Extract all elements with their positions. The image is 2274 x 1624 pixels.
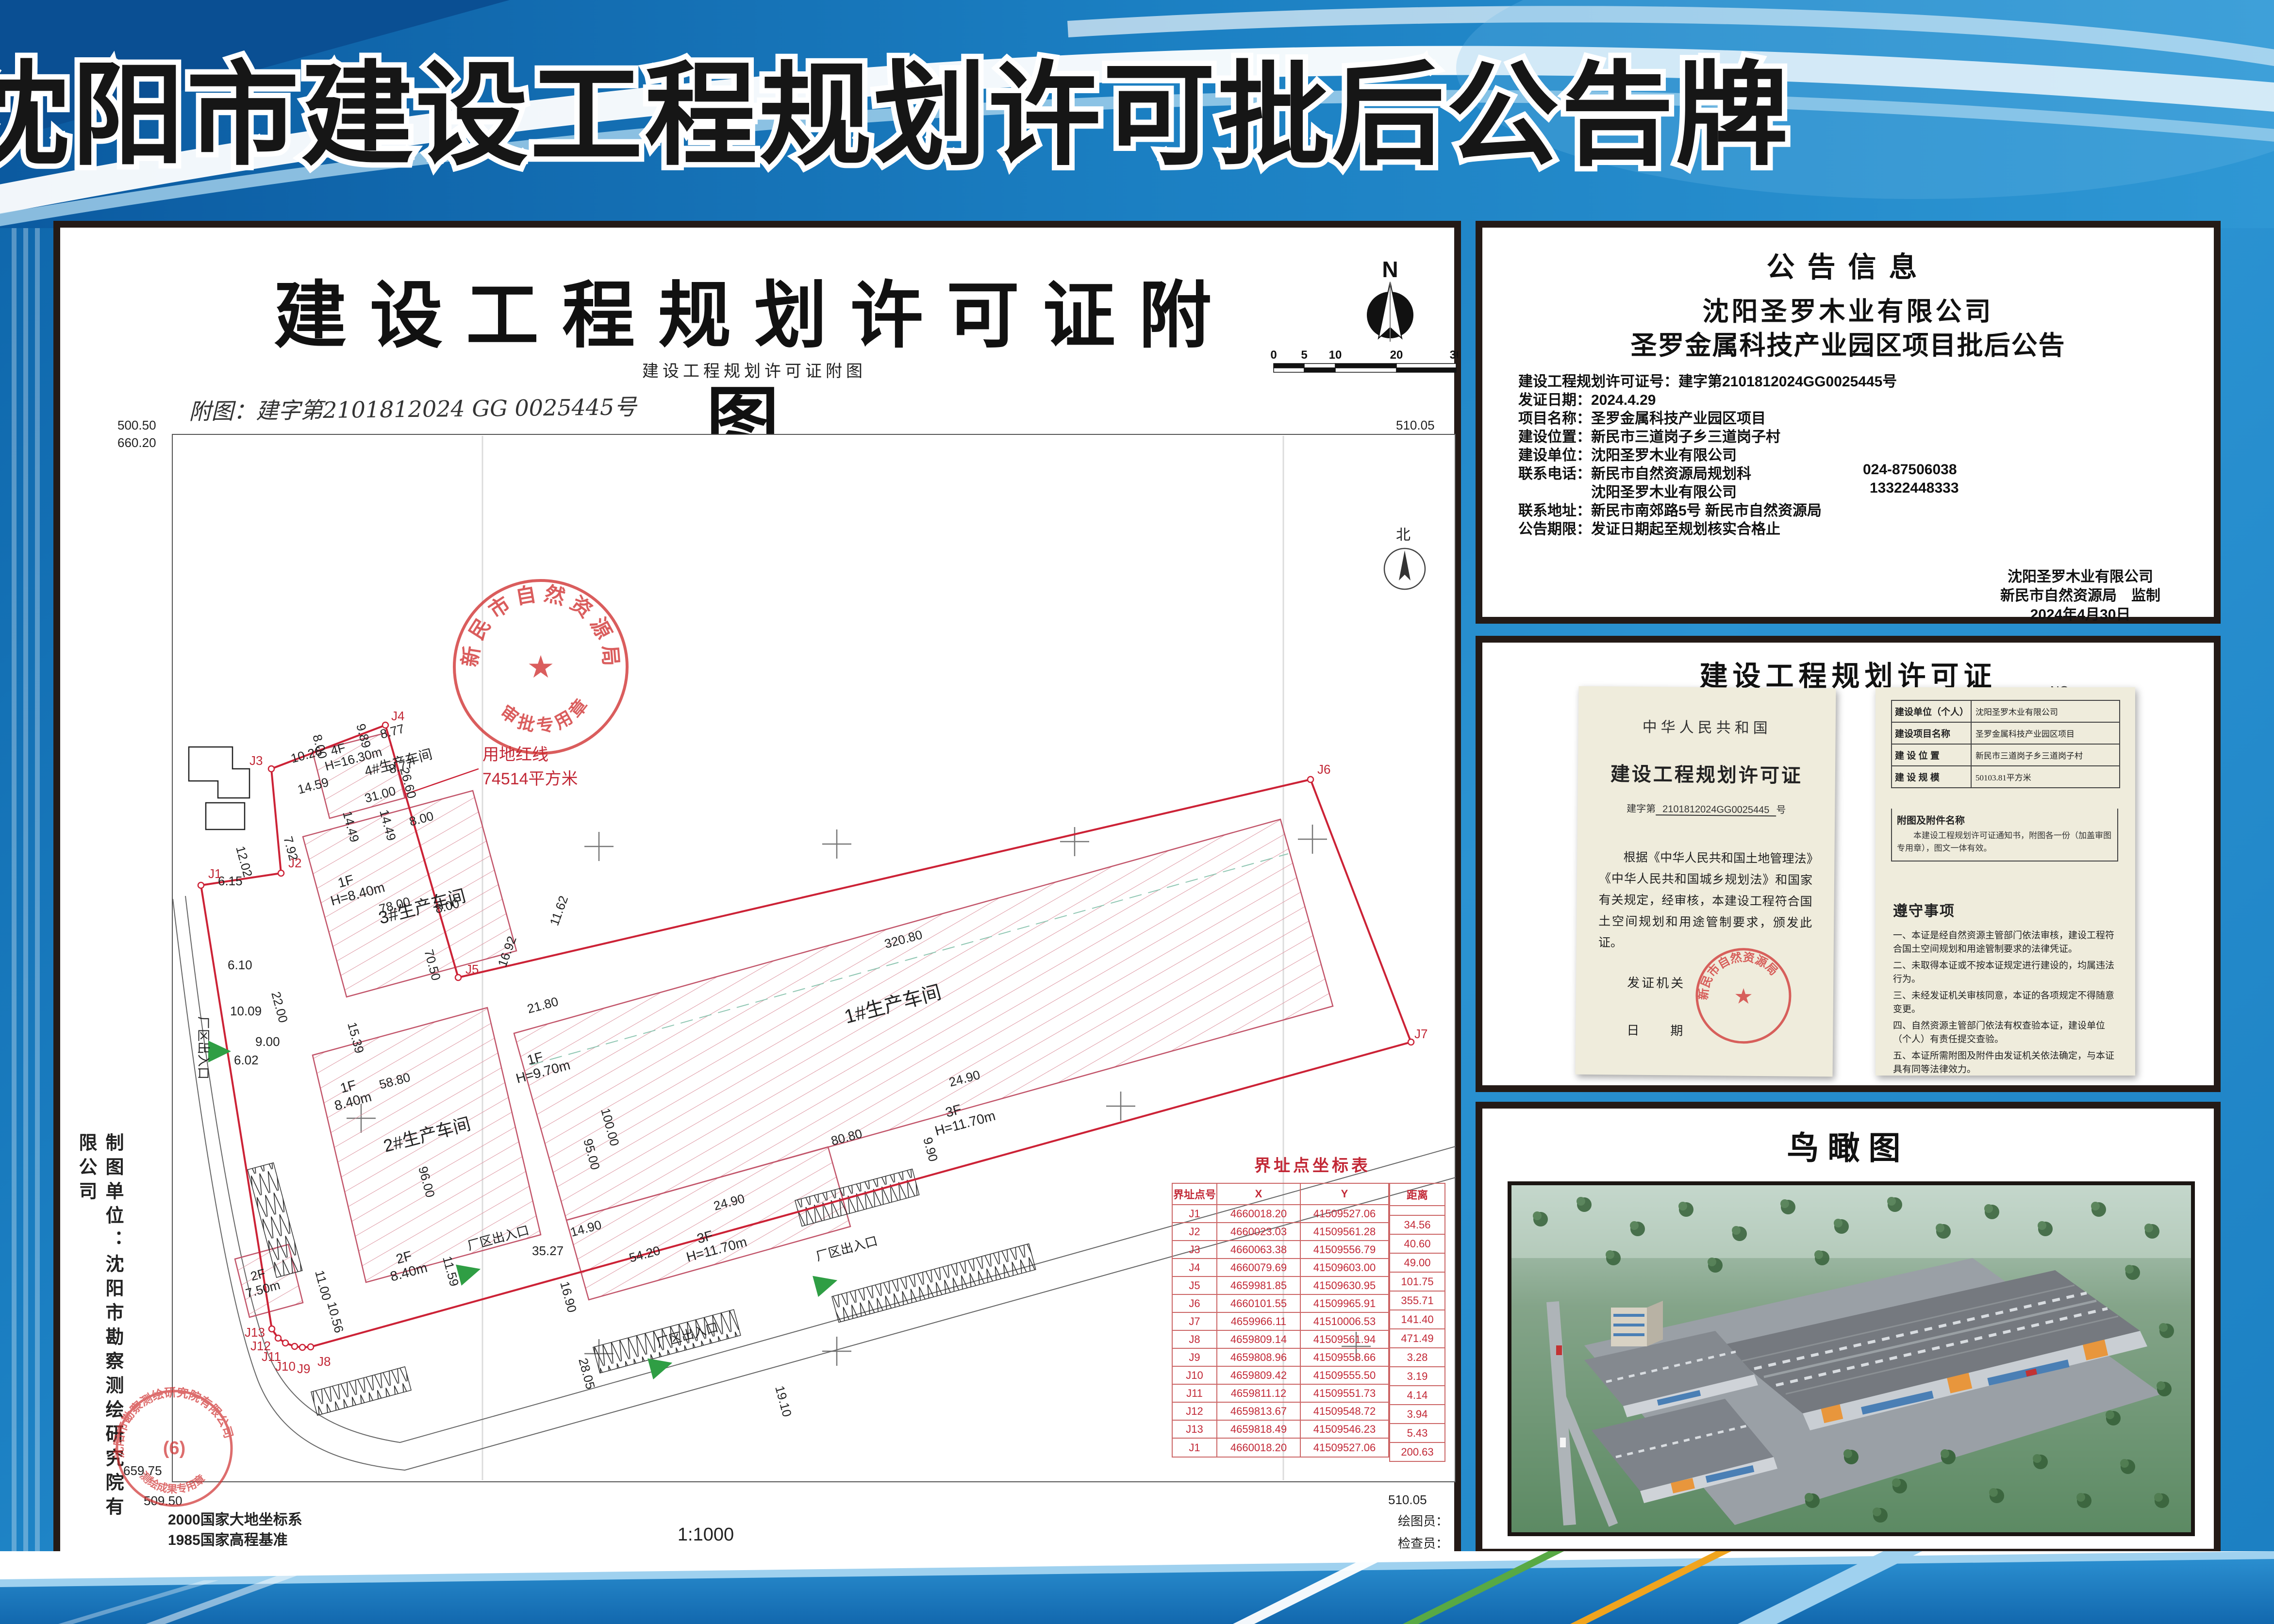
surveyor-seal-center: (6) [163,1438,185,1458]
permit-attach-text: 本建设工程规划许可证通知书，附图各一份（加盖审图专用章），图文一体有效。 [1897,829,2112,855]
office-block [1611,1301,1663,1346]
notice-info-line: 发证日期：2024.4.29 [1518,388,2194,406]
distance-cell: 355.71 [1390,1292,1444,1310]
notice-info-line: 建设工程规划许可证号：建字第2101812024GG0025445号 [1518,369,2194,388]
boundary-table-distances: 距离 34.5640.6049.00101.75355.71141.40471.… [1389,1183,1445,1462]
table-row: J3 4660063.38 41509556.79 [1173,1241,1389,1259]
permit-attach-block: 附图及附件名称 本建设工程规划许可证通知书，附图各一份（加盖审图专用章），图文一… [1891,809,2118,862]
permit-doc-title: 建设工程规划许可证 [1578,758,1835,789]
permit-detail-page: 建设单位（个人） 沈阳圣罗木业有限公司 建设项目名称 圣罗金属科技产业园区项目 … [1876,687,2135,1076]
svg-text:0: 0 [1270,348,1277,362]
distance-cell: 3.94 [1390,1405,1444,1424]
red-line-label-2: 74514平方米 [482,770,578,788]
staff-block: 绘图员：检查员： [1398,1510,1448,1555]
coord-tr-a: 510.05 [1396,418,1435,433]
permit-number-line: 建字第2101812024GG0025445号 [1577,800,1835,817]
permit-notes: 一、本证是经自然资源主管部门依法审核，建设工程符合国土空间规划和用途管制要求的法… [1893,929,2120,1079]
svg-text:5: 5 [1301,348,1307,362]
map-label: 6.10 [228,958,252,972]
notice-footer: 沈阳圣罗木业有限公司新民市自然资源局 监制2024年4月30日 [2000,567,2160,624]
coord-br-b: 510.05 [1388,1492,1427,1508]
map-label: 35.27 [532,1243,564,1258]
birdseye-title: 鸟瞰图 [1482,1122,2214,1169]
map-label: 6.15 [218,874,243,888]
distance-cell: 34.56 [1390,1216,1444,1235]
distance-cell: 49.00 [1390,1254,1444,1273]
distance-cell: 3.19 [1390,1367,1444,1386]
notice-info-line: 联系地址：新民市南郊路5号 新民市自然资源局 [1518,498,2194,517]
permit-table-row: 建 设 规 模 50103.81平方米 [1892,766,2119,788]
table-row: J9 4659808.96 41509558.66 [1173,1349,1389,1367]
permit-number: 2101812024GG0025445 [1656,804,1776,816]
svg-text:30: 30 [1450,348,1458,362]
table-row: J4 4660079.69 41509603.00 [1173,1259,1389,1277]
drawing-panel: 建设工程规划许可证附图 建设工程规划许可证附图 N 0 5 10 20 30 [53,221,1461,1558]
banner-background: 沈阳市建设工程规划许可批后公告牌 [0,0,2274,228]
approval-seal-star: ★ [527,649,554,684]
permit-attach-label: 附图及附件名称 [1897,812,2112,827]
distance-cell: 101.75 [1390,1273,1444,1292]
map-label: 厂区出入口 [196,1016,211,1079]
distance-cell: 4.14 [1390,1386,1444,1405]
map-label: 北 [1396,527,1411,543]
drawing-subtitle: 建设工程规划许可证附图 [245,358,1264,381]
issuer-seal-star: ★ [1734,985,1753,1009]
staff-line: 绘图员： [1398,1510,1448,1532]
issuer-seal: 新民市自然资源局 ★ [1687,940,1800,1052]
notice-info-panel: 公告信息 沈阳圣罗木业有限公司 圣罗金属科技产业园区项目批后公告 建设工程规划许… [1476,221,2221,624]
birdseye-rendering [1508,1181,2195,1536]
map-label: J4 [391,709,404,723]
permit-note-item: 五、本证所需附图及附件由发证机关依法确定，与本证具有同等法律效力。 [1893,1049,2120,1077]
notice-company: 沈阳圣罗木业有限公司 [1482,290,2214,328]
board-title: 沈阳市建设工程规划许可批后公告牌 [0,53,1790,179]
permit-note-item: 四、自然资源主管部门依法有权查验本证，建设单位（个人）有责任提交查验。 [1893,1019,2120,1046]
svg-text:20: 20 [1390,348,1403,362]
map-datum-line: 1985国家高程基准 [168,1530,341,1551]
notice-project: 圣罗金属科技产业园区项目批后公告 [1482,324,2214,362]
permit-table-row: 建 设 位 置 新民市三道岗子乡三道岗子村 [1892,745,2119,766]
table-row: J7 4659966.11 41510006.53 [1173,1313,1389,1331]
scale-bar: 0 5 10 20 30 [1270,348,1458,372]
handwritten-permit-number: 附图：建字第2101812024 GG 0025445号 [189,389,637,426]
left-edge-stripes [12,228,42,1553]
table-row: J13 4659818.49 41509546.23 [1173,1421,1389,1439]
table-row: J11 4659811.12 41509551.73 [1173,1385,1389,1403]
map-label: J13 [245,1325,265,1340]
notice-phone-row: 联系电话： 新民市自然资源局规划科 024-87506038 [1518,462,2194,480]
permit-body-text: 根据《中华人民共和国土地管理法》《中华人民共和国城乡规划法》和国家有关规定，经审… [1598,846,1813,955]
table-row: J1 4660018.20 41509527.06 [1173,1439,1389,1457]
permit-note-item: 一、本证是经自然资源主管部门依法审核，建设工程符合国土空间规划和用途管制要求的法… [1893,929,2120,956]
table-row: J6 4660101.55 41509965.91 [1173,1295,1389,1313]
table-row: J2 4660023.03 41509561.28 [1173,1223,1389,1241]
notice-board: 沈阳市建设工程规划许可批后公告牌 建设工程规划许可证附图 建设工程规划许可证附图… [0,0,2274,1624]
map-scale-text: 1:1000 [633,1525,779,1545]
boundary-coordinate-table: 界址点坐标表 界址点号 X Y J1 4660018.20 [1172,1152,1453,1462]
surveyor-seal: 沈阳市勘察测绘研究院有限公司 (6) 测绘成果专用章 [106,1380,242,1516]
table-row: J5 4659981.85 41509630.95 [1173,1277,1389,1295]
surveyor-seal-bottom-text: 测绘成果专用章 [138,1469,208,1495]
map-label: J12 [250,1339,271,1353]
distance-cell: 141.40 [1390,1310,1444,1329]
notice-footer-line: 沈阳圣罗木业有限公司 [2000,567,2160,586]
permit-issuer-label: 发证机关 [1627,973,1685,992]
notice-info-line: 建设位置：新民市三道岗子乡三道岗子村 [1518,425,2194,443]
table-row: J8 4659809.14 41509561.94 [1173,1331,1389,1349]
map-label: J9 [297,1361,310,1376]
map-label: 10.09 [230,1004,262,1018]
coord-tl-b: 660.20 [117,435,156,450]
distance-cell: 5.43 [1390,1424,1444,1443]
permit-notes-title: 遵守事项 [1893,899,1955,920]
map-label: 6.02 [234,1053,259,1067]
notice-info-block: 建设工程规划许可证号：建字第2101812024GG0025445号发证日期：2… [1518,369,2194,535]
svg-text:测绘成果专用章: 测绘成果专用章 [138,1469,208,1495]
permit-table-row: 建设项目名称 圣罗金属科技产业园区项目 [1892,723,2119,745]
map-label: 9.00 [255,1034,280,1049]
map-label: J8 [317,1354,331,1369]
birdseye-panel: 鸟瞰图 [1476,1102,2221,1556]
map-label: J6 [1317,762,1330,777]
permit-country: 中华人民共和国 [1578,714,1836,738]
map-label: J1 [208,866,221,881]
permit-note-item: 二、未取得本证或不按本证规定进行建设的，均属违法行为。 [1893,959,2120,986]
permit-cover-page: 中华人民共和国 建设工程规划许可证 建字第2101812024GG0025445… [1576,686,1836,1077]
footer-band [0,1551,2274,1624]
svg-text:10: 10 [1329,348,1342,362]
notice-info-line: 项目名称：圣罗金属科技产业园区项目 [1518,406,2194,425]
distance-cell: 471.49 [1390,1329,1444,1348]
distance-cell: 3.28 [1390,1348,1444,1367]
boundary-table-title: 界址点坐标表 [1172,1152,1453,1176]
permit-table-row: 建设单位（个人） 沈阳圣罗木业有限公司 [1892,701,2119,723]
boundary-table-points: 界址点号 X Y J1 4660018.20 41509527.06 [1172,1183,1389,1458]
boundary-table-header: 界址点号 X Y [1173,1184,1389,1205]
notice-footer-line: 2024年4月30日 [2000,605,2160,624]
notice-info-line: 公告期限：发证日期起至规划核实合格止 [1518,517,2194,535]
map-label: J5 [465,962,479,977]
map-label: J3 [249,753,263,768]
distance-cell: 40.60 [1390,1235,1444,1254]
north-and-scale: N 0 5 10 20 30 [1264,247,1458,383]
permit-table: 建设单位（个人） 沈阳圣罗木业有限公司 建设项目名称 圣罗金属科技产业园区项目 … [1891,700,2120,788]
north-letter: N [1382,257,1398,282]
permit-date-label: 日 期 [1627,1021,1685,1039]
permit-panel: 建设工程规划许可证 NO. 中华人民共和国 建设工程规划许可证 建字第21018… [1476,636,2221,1092]
coord-tl-a: 500.50 [117,418,156,433]
table-row: J10 4659809.42 41509555.50 [1173,1367,1389,1385]
permit-note-item: 三、未经发证机关审核同意，本证的各项规定不得随意变更。 [1893,989,2120,1016]
notice-info-line: 建设单位：沈阳圣罗木业有限公司 [1518,443,2194,462]
notice-title: 公告信息 [1482,244,2214,285]
map-label: J7 [1414,1027,1427,1041]
table-row: J1 4660018.20 41509527.06 [1173,1205,1389,1223]
notice-footer-line: 新民市自然资源局 监制 [2000,586,2160,605]
notice-phone-row: 沈阳圣罗木业有限公司 13322448333 [1518,480,2194,498]
table-row: J12 4659813.67 41509548.72 [1173,1403,1389,1421]
distance-cell: 200.63 [1390,1443,1444,1461]
map-label: J2 [288,856,301,870]
